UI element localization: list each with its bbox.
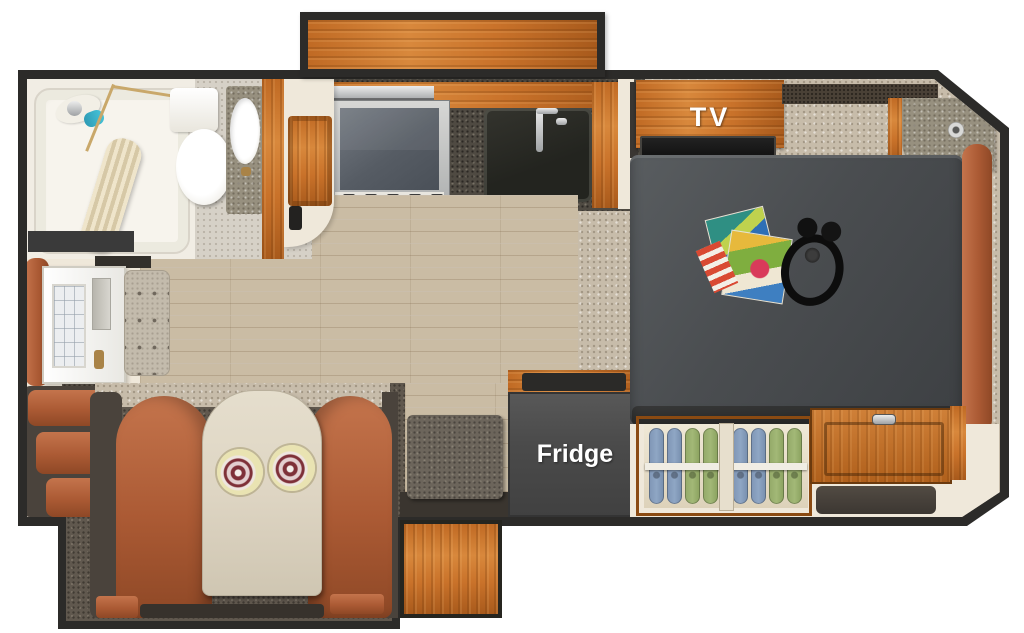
sink-faucet-spout (536, 108, 558, 114)
stove (330, 100, 450, 208)
wardrobe-divider (719, 423, 734, 511)
bath-sink (230, 98, 260, 164)
medicine-cabinet (92, 278, 111, 330)
bed-step-trim (950, 406, 966, 480)
sink-faucet-handle (556, 118, 567, 125)
side-bench-cushion (36, 432, 112, 474)
dinette-slideout-box (58, 505, 400, 629)
entry-step-ottoman (407, 415, 503, 499)
bathroom (27, 79, 312, 259)
cabinet-knob (94, 350, 104, 369)
sink-faucet (536, 108, 543, 152)
underbed-drawer (810, 408, 952, 484)
sink-drain (528, 160, 544, 176)
bathroom-wall-divider (262, 79, 284, 259)
corner-shelf-trim (888, 98, 902, 162)
drawer-panel (824, 422, 944, 476)
camper-floorplan: Fridge TV (0, 0, 1024, 633)
tv-label: TV (636, 102, 784, 133)
shower-head (67, 101, 82, 116)
fridge: Fridge (508, 392, 642, 517)
wall-vent (289, 206, 302, 230)
fridge-label: Fridge (537, 440, 613, 469)
galley-cabinet-door (288, 116, 332, 206)
window-unit (42, 266, 126, 384)
seat-back-panel (124, 270, 170, 376)
range-hood (327, 86, 434, 101)
side-bench-cushion (28, 390, 110, 426)
fridge-top-tray (522, 373, 626, 391)
bed-side-bolster (962, 144, 992, 434)
wardrobe (636, 416, 812, 516)
cup (948, 122, 964, 138)
bath-faucet (241, 167, 251, 176)
stove-glass-top (340, 108, 439, 190)
side-bench-cushion (46, 478, 112, 517)
bath-threshold (28, 231, 134, 252)
drawer-handle (872, 414, 896, 425)
toilet-bowl (176, 129, 232, 205)
toilet-tank (170, 88, 218, 132)
galley-end-panel (592, 82, 618, 208)
top-slideout (300, 12, 605, 77)
window-pane (52, 284, 86, 368)
entry-step (400, 520, 502, 618)
bed-step-mat (816, 486, 936, 514)
